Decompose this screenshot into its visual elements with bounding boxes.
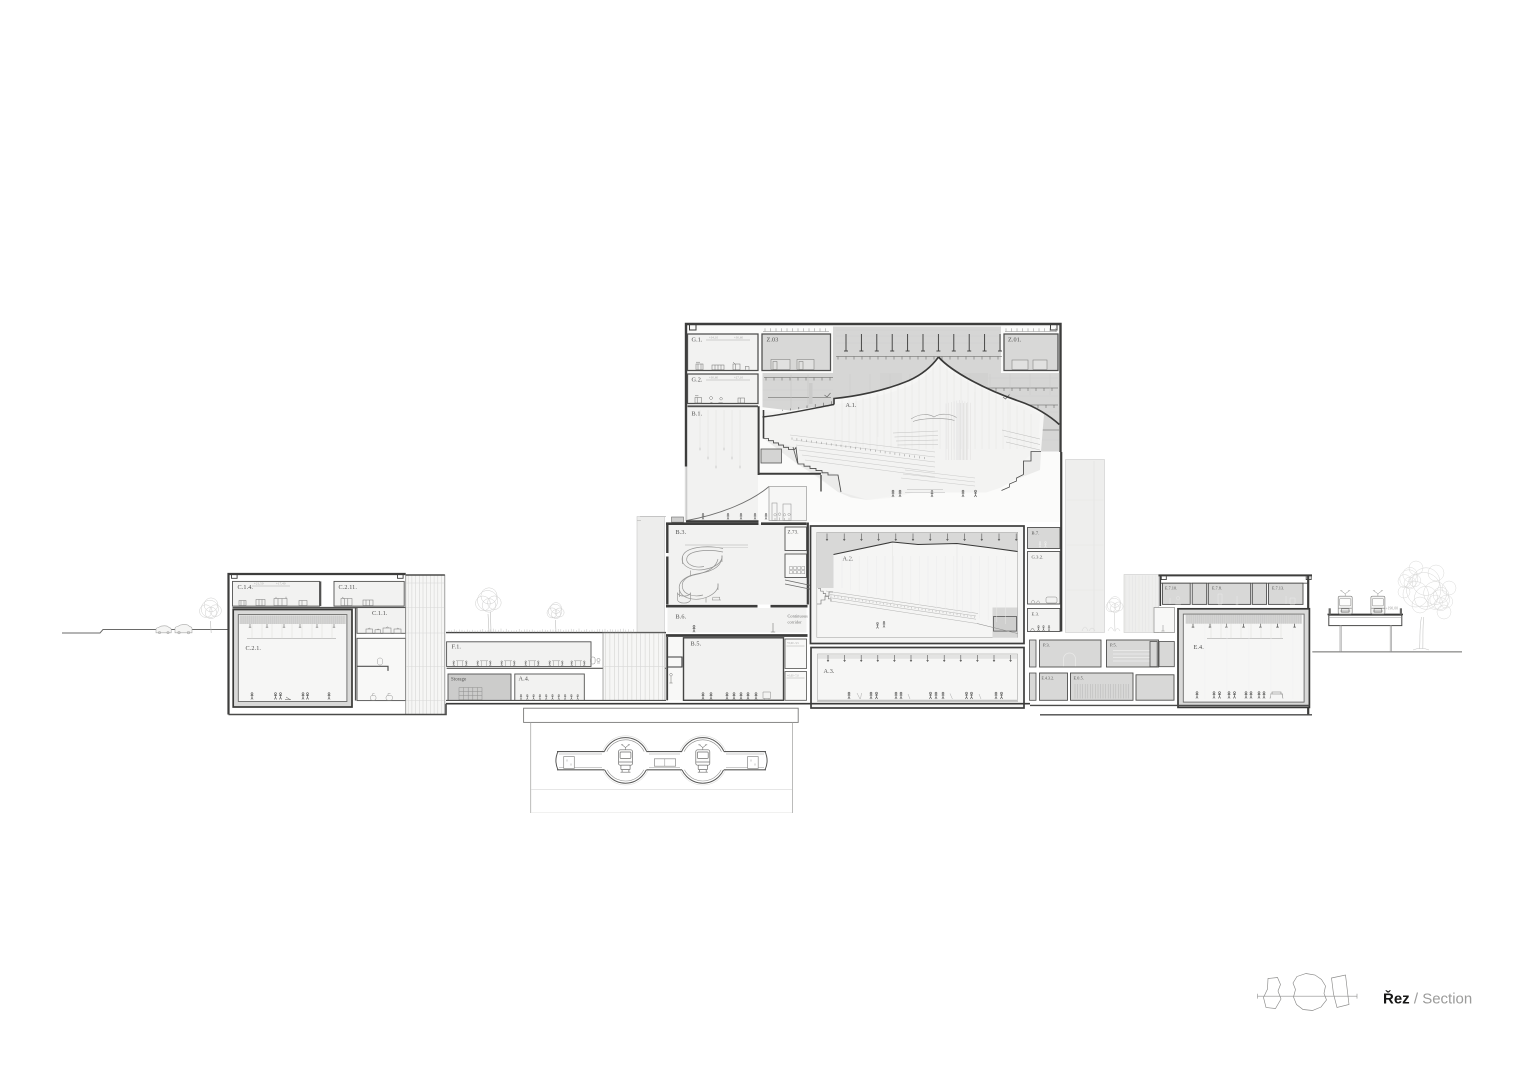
svg-text:B.6.: B.6. (676, 614, 687, 621)
svg-text:E.7.10.: E.7.10. (1165, 586, 1177, 591)
svg-text:P.5.: P.5. (1110, 643, 1117, 648)
svg-text:E.0.5.: E.0.5. (1074, 676, 1085, 681)
svg-text:corridor: corridor (788, 620, 803, 625)
svg-text:G.3.2.: G.3.2. (1032, 555, 1044, 560)
svg-text:P.3.: P.3. (1043, 643, 1050, 648)
svg-text:A.3.: A.3. (824, 668, 835, 675)
svg-text:E.4.3.2.: E.4.3.2. (1042, 677, 1055, 681)
svg-text:+0,00 -7,0: +0,00 -7,0 (787, 675, 799, 678)
svg-text:B.5.: B.5. (691, 641, 702, 648)
svg-text:G.1.: G.1. (692, 337, 703, 344)
svg-text:F.1.: F.1. (452, 644, 462, 651)
svg-text:E.7.13.: E.7.13. (1272, 586, 1284, 591)
svg-text:A.1.: A.1. (846, 402, 857, 409)
svg-text:B.7.: B.7. (1032, 531, 1040, 536)
svg-text:Z.73.: Z.73. (788, 531, 799, 536)
svg-text:C.2.1.: C.2.1. (246, 645, 262, 652)
svg-text:Z.03: Z.03 (767, 337, 779, 344)
svg-text:C.2.11.: C.2.11. (339, 584, 358, 591)
svg-text:E.3.: E.3. (1032, 612, 1040, 617)
svg-text:Řez / Section: Řez / Section (1383, 990, 1472, 1008)
svg-text:A.4.: A.4. (519, 676, 530, 683)
svg-text:G.2.: G.2. (692, 377, 703, 384)
svg-text:C.1.1.: C.1.1. (372, 610, 388, 617)
svg-text:Continuous: Continuous (788, 614, 809, 619)
svg-text:C.1.4.: C.1.4. (238, 584, 254, 591)
svg-text:A.2.: A.2. (843, 556, 854, 563)
svg-text:B.3.: B.3. (676, 529, 687, 536)
svg-text:E.7.8.: E.7.8. (1212, 586, 1222, 591)
svg-text:Storage: Storage (451, 678, 466, 683)
svg-text:+0,00 -3,5: +0,00 -3,5 (787, 642, 799, 645)
svg-text:B.1.: B.1. (692, 411, 703, 418)
svg-text:Z.01.: Z.01. (1008, 337, 1022, 344)
svg-text:E.4.: E.4. (1194, 644, 1205, 651)
